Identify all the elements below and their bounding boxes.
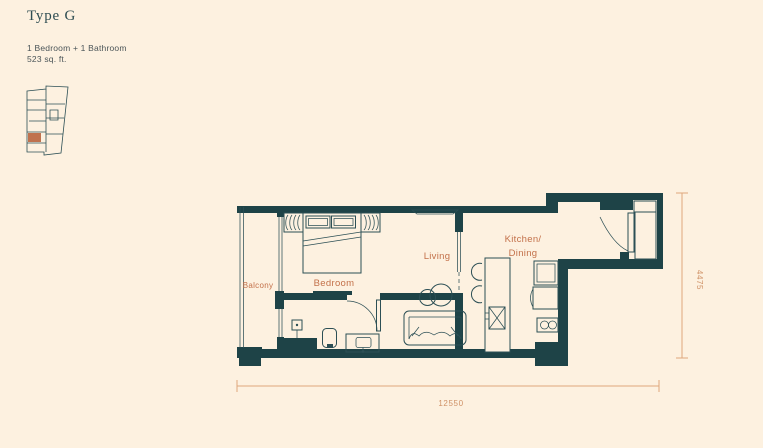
entry-door bbox=[600, 213, 634, 252]
living-label: Living bbox=[424, 251, 451, 262]
bedroom-partition bbox=[458, 232, 461, 293]
floorplan-page: Type G 1 Bedroom + 1 Bathroom 523 sq. ft… bbox=[0, 0, 763, 448]
dimension-bottom-value: 12550 bbox=[438, 399, 463, 408]
fridge bbox=[534, 261, 558, 285]
oven bbox=[531, 287, 559, 309]
bedroom-label: Bedroom bbox=[314, 278, 355, 289]
bathroom-shower bbox=[292, 320, 302, 338]
dimension-right-value: 4475 bbox=[695, 270, 704, 290]
balcony-sliding-door bbox=[279, 217, 282, 337]
kitchen-dining-label-line1: Kitchen/ bbox=[505, 234, 542, 245]
balcony-railing bbox=[240, 207, 244, 348]
entry-cabinet bbox=[634, 201, 656, 259]
wardrobe-right bbox=[361, 213, 380, 232]
bed bbox=[303, 213, 361, 273]
kitchen-island bbox=[485, 258, 510, 352]
dimension-bottom: 12550 bbox=[237, 380, 659, 408]
bathroom-door bbox=[347, 300, 381, 331]
bar-stools bbox=[471, 263, 482, 303]
balcony-label: Balcony bbox=[243, 281, 274, 290]
floorplan-drawing: Balcony Bedroom Living Kitchen/ Dining 1… bbox=[0, 0, 763, 448]
unit-walls bbox=[237, 193, 663, 366]
kitchen-dining-label-line2: Dining bbox=[509, 248, 538, 259]
dimension-right: 4475 bbox=[676, 193, 704, 358]
cooktop bbox=[537, 318, 558, 332]
bathroom-toilet bbox=[323, 329, 337, 349]
wardrobe-left bbox=[284, 213, 303, 232]
